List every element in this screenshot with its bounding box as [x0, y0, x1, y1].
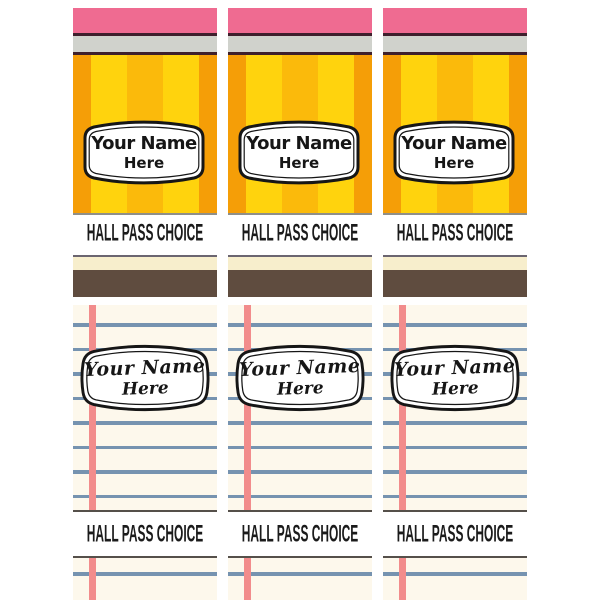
pencil-striped-body: Your Name Here: [228, 55, 372, 215]
badge-name-line1: Your Name: [401, 135, 506, 153]
badge-text: Your Name Here: [82, 118, 206, 187]
hall-pass-caption: HALL PASS CHOICE: [73, 215, 217, 249]
badge-name-line2: Here: [431, 380, 478, 399]
badge-name-line2: Here: [434, 156, 474, 171]
notebook-pass-card: Your Name Here: [228, 305, 372, 512]
hall-pass-caption: HALL PASS CHOICE: [383, 516, 527, 550]
badge-name-line1: Your Name: [246, 135, 351, 153]
badge-name-line2: Here: [121, 380, 168, 399]
notebook-margin-line: [244, 558, 251, 600]
pass-column: Your Name Here HALL PASS CHOICE: [383, 0, 527, 600]
cropped-card-brown-band: [383, 270, 527, 297]
hall-pass-caption-text: HALL PASS CHOICE: [242, 220, 359, 244]
notebook-margin-line: [399, 558, 406, 600]
cropped-notebook-card: [73, 556, 217, 600]
badge-name-line1: Your Name: [84, 356, 206, 379]
badge-text: Your Name Here: [392, 118, 516, 187]
pencil-pass-card: Your Name Here: [383, 8, 527, 215]
cropped-card-brown-band: [228, 270, 372, 297]
name-badge: Your Name Here: [78, 340, 212, 416]
badge-text: Your Name Here: [388, 340, 522, 416]
pass-column: Your Name Here HALL PASS CHOICE: [73, 0, 217, 600]
notebook-pass-card: Your Name Here: [73, 305, 217, 512]
pencil-eraser-band: [228, 8, 372, 33]
badge-name-line1: Your Name: [239, 356, 361, 379]
hall-pass-caption-text: HALL PASS CHOICE: [87, 220, 204, 244]
hall-pass-caption: HALL PASS CHOICE: [73, 516, 217, 550]
cropped-notebook-card: [383, 556, 527, 600]
cropped-card-cream-band: [73, 257, 217, 270]
pencil-striped-body: Your Name Here: [73, 55, 217, 215]
badge-name-line1: Your Name: [394, 356, 516, 379]
pencil-striped-body: Your Name Here: [383, 55, 527, 215]
hall-pass-caption-text: HALL PASS CHOICE: [397, 220, 514, 244]
hall-pass-caption: HALL PASS CHOICE: [228, 215, 372, 249]
badge-name-line2: Here: [276, 380, 323, 399]
pencil-ferrule-band: [73, 36, 217, 52]
hall-pass-caption: HALL PASS CHOICE: [383, 215, 527, 249]
badge-name-line2: Here: [279, 156, 319, 171]
pencil-eraser-band: [383, 8, 527, 33]
cropped-card-top: [73, 255, 217, 297]
name-badge: Your Name Here: [237, 118, 361, 187]
pass-sheet: Your Name Here HALL PASS CHOICE: [73, 0, 527, 600]
hall-pass-caption: HALL PASS CHOICE: [228, 516, 372, 550]
pencil-pass-card: Your Name Here: [73, 8, 217, 215]
cropped-card-brown-band: [73, 270, 217, 297]
pencil-ferrule-band: [383, 36, 527, 52]
pencil-pass-card: Your Name Here: [228, 8, 372, 215]
notebook-margin-line: [89, 558, 96, 600]
cropped-card-cream-band: [228, 257, 372, 270]
hall-pass-caption-text: HALL PASS CHOICE: [87, 521, 204, 545]
name-badge: Your Name Here: [388, 340, 522, 416]
badge-text: Your Name Here: [233, 340, 367, 416]
hall-pass-caption-text: HALL PASS CHOICE: [397, 521, 514, 545]
badge-text: Your Name Here: [78, 340, 212, 416]
name-badge: Your Name Here: [233, 340, 367, 416]
pencil-ferrule-band: [228, 36, 372, 52]
cropped-notebook-card: [228, 556, 372, 600]
badge-name-line1: Your Name: [91, 135, 196, 153]
notebook-pass-card: Your Name Here: [383, 305, 527, 512]
cropped-card-top: [228, 255, 372, 297]
name-badge: Your Name Here: [82, 118, 206, 187]
pencil-eraser-band: [73, 8, 217, 33]
hall-pass-caption-text: HALL PASS CHOICE: [242, 521, 359, 545]
cropped-card-top: [383, 255, 527, 297]
cropped-card-cream-band: [383, 257, 527, 270]
name-badge: Your Name Here: [392, 118, 516, 187]
badge-name-line2: Here: [124, 156, 164, 171]
badge-text: Your Name Here: [237, 118, 361, 187]
pass-column: Your Name Here HALL PASS CHOICE: [228, 0, 372, 600]
